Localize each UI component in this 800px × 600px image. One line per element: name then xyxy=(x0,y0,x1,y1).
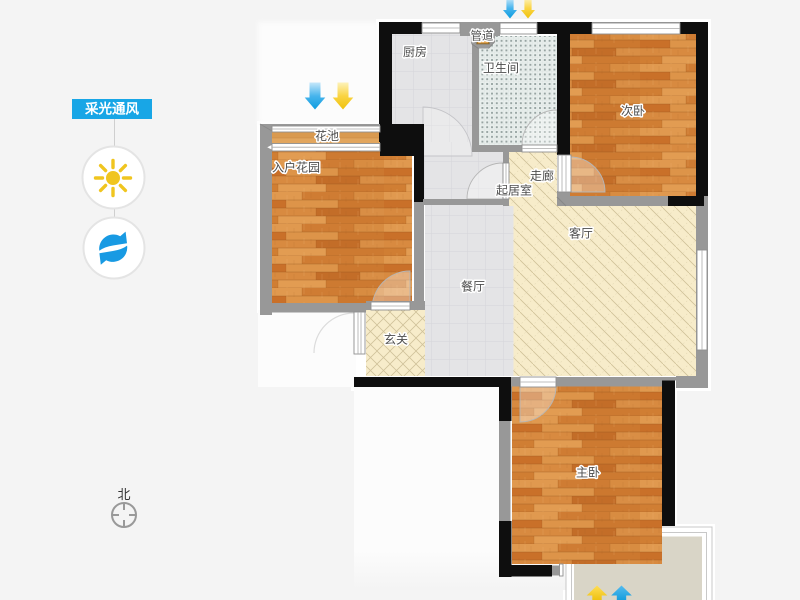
svg-text:主卧: 主卧 xyxy=(576,466,600,480)
svg-text:采光通风: 采光通风 xyxy=(85,101,139,117)
svg-text:卫生间: 卫生间 xyxy=(483,61,519,75)
svg-text:玄关: 玄关 xyxy=(384,332,408,347)
svg-text:入户花园: 入户花园 xyxy=(272,160,320,175)
svg-text:客厅: 客厅 xyxy=(569,226,593,241)
svg-text:起居室: 起居室 xyxy=(496,183,532,198)
svg-text:北: 北 xyxy=(117,487,130,502)
svg-text:厨房: 厨房 xyxy=(403,44,427,59)
svg-text:餐厅: 餐厅 xyxy=(461,279,485,294)
svg-text:走廊: 走廊 xyxy=(530,168,554,183)
svg-text:管道: 管道 xyxy=(471,29,494,43)
svg-text:次卧: 次卧 xyxy=(621,104,645,118)
svg-text:花池: 花池 xyxy=(315,128,339,143)
